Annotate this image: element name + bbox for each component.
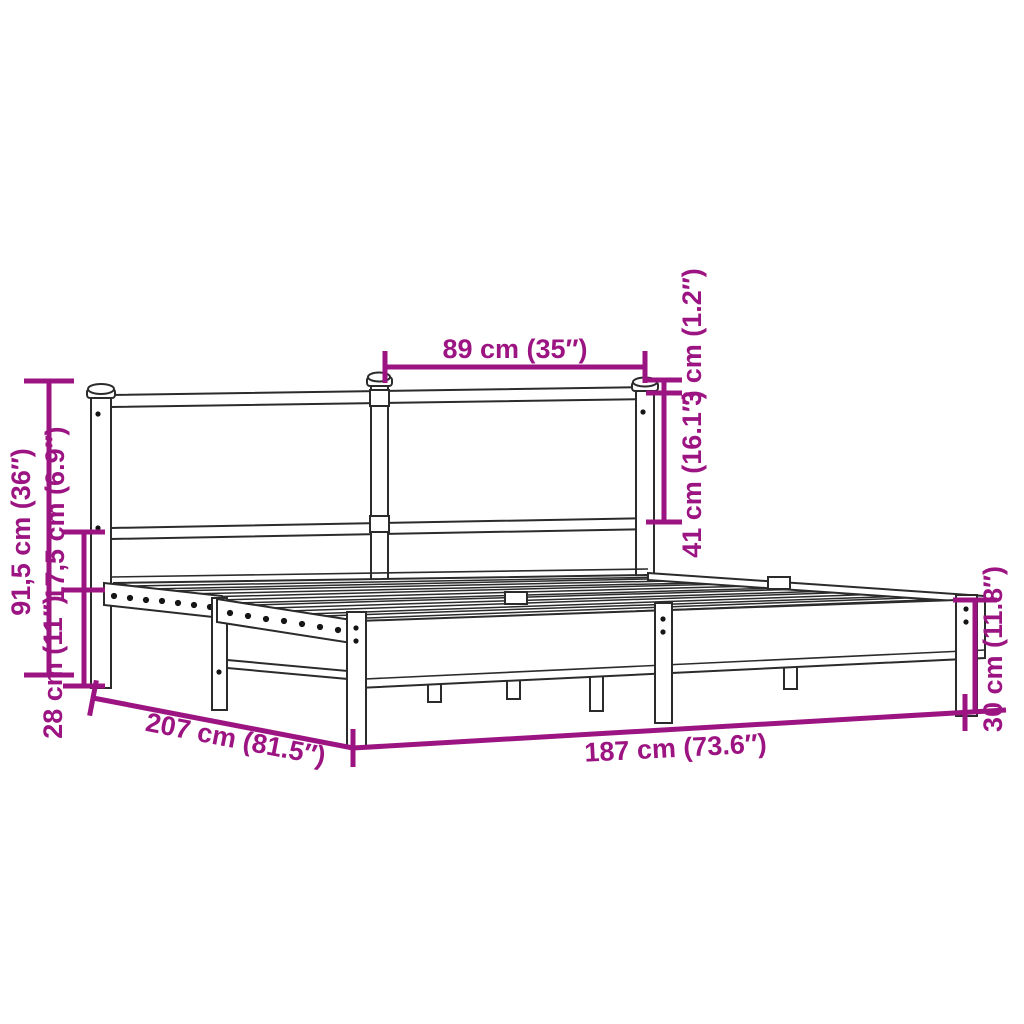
dimension-label: 17,5 cm (6.9″) bbox=[40, 426, 70, 601]
headboard-left-finial bbox=[88, 384, 114, 394]
dimension-bed-width: 187 cm (73.6″) bbox=[353, 694, 1006, 768]
center-post-bracket bbox=[370, 390, 389, 406]
dimension-label: 3 cm (1.2″) bbox=[677, 268, 707, 406]
bolt bbox=[353, 638, 358, 643]
bed-frame-diagram: 89 cm (35″) 3 cm (1.2″) 41 cm (16.1″) 91… bbox=[0, 0, 1024, 1024]
dimension-headboard-right: 3 cm (1.2″) 41 cm (16.1″) bbox=[646, 268, 707, 558]
dimension-label: 30 cm (11.8″) bbox=[978, 566, 1008, 732]
bolt bbox=[640, 409, 645, 414]
slat-bracket bbox=[768, 577, 790, 589]
front-rail bbox=[347, 595, 985, 748]
bolt bbox=[963, 606, 968, 611]
dimension-headboard-section-width: 89 cm (35″) bbox=[385, 334, 645, 383]
dimension-label: 41 cm (16.1″) bbox=[677, 390, 707, 558]
dimension-label: 91,5 cm (36″) bbox=[6, 448, 36, 616]
bolt bbox=[95, 411, 100, 416]
front-left-leg bbox=[347, 612, 366, 748]
product-diagram-canvas: 89 cm (35″) 3 cm (1.2″) 41 cm (16.1″) 91… bbox=[0, 0, 1024, 1024]
slat-bracket bbox=[505, 592, 527, 604]
support-foot bbox=[590, 675, 603, 711]
dimension-label: 207 cm (81.5″) bbox=[143, 707, 328, 771]
center-post-bracket bbox=[370, 516, 389, 532]
bed-frame-drawing bbox=[87, 373, 985, 749]
dimension-label: 28 cm (11″) bbox=[38, 595, 68, 739]
bolt bbox=[660, 616, 665, 621]
bolt bbox=[963, 619, 968, 624]
bolt bbox=[353, 625, 358, 630]
dimension-label: 89 cm (35″) bbox=[442, 334, 587, 364]
bolt bbox=[660, 629, 665, 634]
headboard-center-post bbox=[371, 384, 388, 610]
left-lower-brace bbox=[227, 660, 348, 679]
bolt bbox=[216, 669, 221, 674]
headboard-left-post bbox=[91, 396, 111, 688]
